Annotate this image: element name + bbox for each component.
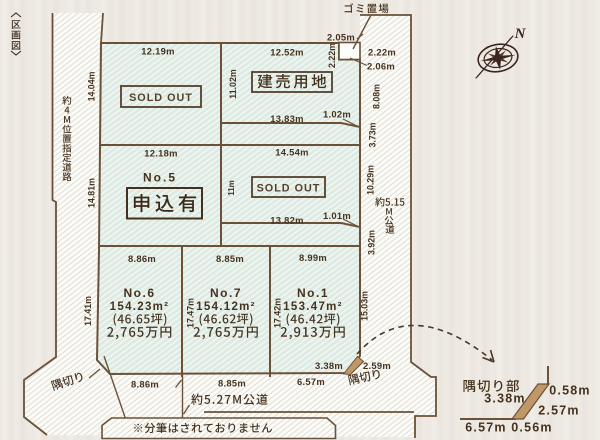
svg-text:1.02m: 1.02m [323,108,351,119]
svg-text:3.92m: 3.92m [367,230,377,255]
svg-text:17.47m: 17.47m [186,298,196,328]
svg-text:2.06m: 2.06m [367,60,395,71]
svg-text:2.22m: 2.22m [368,46,396,57]
svg-text:2.22m: 2.22m [327,43,337,68]
svg-text:154.12m²: 154.12m² [196,301,256,313]
svg-text:14.04m: 14.04m [87,71,97,101]
svg-text:13.83m: 13.83m [270,113,304,124]
svg-text:14.54m: 14.54m [275,146,309,157]
svg-text:6.57m: 6.57m [465,420,506,434]
svg-text:13.82m: 13.82m [270,214,304,225]
svg-text:14.81m: 14.81m [87,178,97,208]
svg-text:2.57m: 2.57m [538,403,579,417]
svg-text:8.85m: 8.85m [216,253,244,264]
svg-text:SOLD OUT: SOLD OUT [257,182,321,194]
svg-text:No.6: No.6 [123,286,155,300]
svg-text:N: N [514,26,527,42]
svg-text:10.29m: 10.29m [366,165,376,195]
svg-text:2.59m: 2.59m [363,360,391,371]
svg-text:3.38m: 3.38m [315,360,343,371]
svg-text:154.23m²: 154.23m² [110,301,170,313]
svg-text:3.38m: 3.38m [484,391,525,405]
svg-text:11.02m: 11.02m [228,69,238,99]
svg-text:8.86m: 8.86m [128,253,156,264]
svg-text:0.56m: 0.56m [511,420,552,434]
svg-text:11m: 11m [227,180,236,196]
svg-text:12.19m: 12.19m [141,45,175,56]
svg-text:153.47m²: 153.47m² [283,301,343,313]
svg-text:8.08m: 8.08m [372,84,382,109]
svg-text:6.57m: 6.57m [297,376,325,387]
svg-text:2.05m: 2.05m [327,31,355,42]
svg-text:17.41m: 17.41m [83,296,93,326]
svg-text:12.18m: 12.18m [144,147,178,158]
svg-text:17.42m: 17.42m [273,298,283,328]
svg-text:SOLD OUT: SOLD OUT [129,92,193,104]
svg-text:8.99m: 8.99m [299,252,327,263]
svg-text:No.7: No.7 [210,286,242,300]
svg-text:1.01m: 1.01m [323,210,351,221]
svg-text:12.52m: 12.52m [270,46,304,57]
svg-text:0.58m: 0.58m [549,383,590,397]
svg-text:No.5: No.5 [143,171,177,185]
svg-text:15.03m: 15.03m [360,291,370,321]
svg-text:No.1: No.1 [297,286,329,300]
svg-text:8.86m: 8.86m [131,378,159,389]
svg-text:3.73m: 3.73m [368,122,378,147]
svg-text:8.85m: 8.85m [218,377,246,388]
